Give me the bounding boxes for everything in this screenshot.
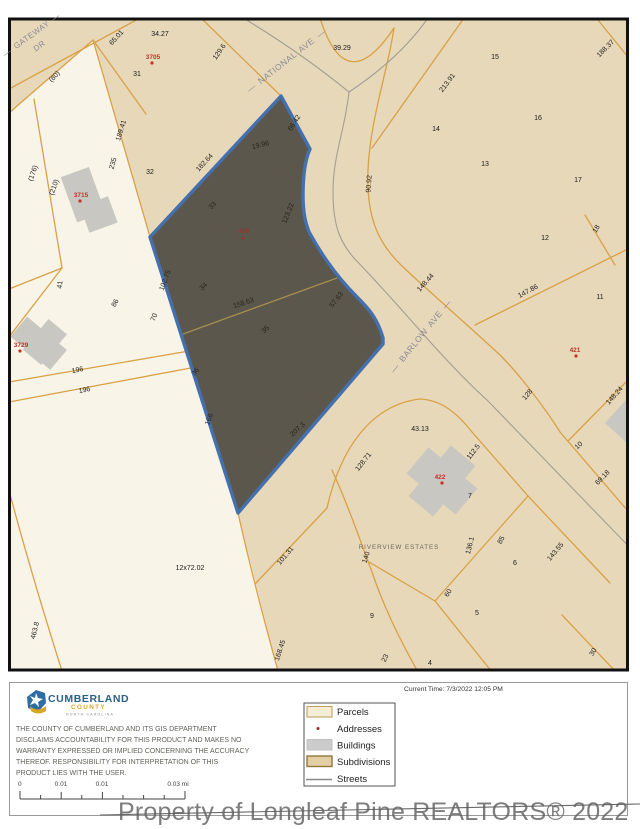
svg-text:0.01: 0.01 xyxy=(55,781,68,788)
svg-text:Current Time: 7/3/2022 12:05 P: Current Time: 7/3/2022 12:05 PM xyxy=(404,686,503,693)
svg-text:RIVERVIEW ESTATES: RIVERVIEW ESTATES xyxy=(359,544,440,551)
svg-text:PRODUCT LIES WITH THE USER.: PRODUCT LIES WITH THE USER. xyxy=(16,770,127,777)
svg-text:11: 11 xyxy=(596,294,603,301)
svg-text:0: 0 xyxy=(18,781,22,788)
svg-text:Property of Longleaf Pine REAL: Property of Longleaf Pine REALTORS® 2022 xyxy=(118,798,629,826)
svg-text:14: 14 xyxy=(432,126,440,133)
svg-text:NORTH CAROLINA: NORTH CAROLINA xyxy=(66,713,114,717)
svg-text:408: 408 xyxy=(239,228,250,235)
svg-text:COUNTY: COUNTY xyxy=(71,704,106,711)
svg-text:Buildings: Buildings xyxy=(337,741,376,752)
svg-text:THE COUNTY OF CUMBERLAND AND I: THE COUNTY OF CUMBERLAND AND ITS GIS DEP… xyxy=(16,726,217,733)
svg-text:32: 32 xyxy=(146,169,154,176)
svg-text:0.01: 0.01 xyxy=(96,781,109,788)
svg-text:12x72.02: 12x72.02 xyxy=(176,565,205,572)
svg-text:422: 422 xyxy=(435,474,446,481)
svg-text:5: 5 xyxy=(475,610,479,617)
svg-text:41: 41 xyxy=(57,281,65,290)
svg-text:31: 31 xyxy=(133,71,141,78)
svg-text:15: 15 xyxy=(491,54,499,61)
svg-text:3705: 3705 xyxy=(146,54,161,61)
svg-text:3715: 3715 xyxy=(74,192,89,199)
svg-text:43.13: 43.13 xyxy=(411,426,429,433)
svg-text:90.92: 90.92 xyxy=(365,175,373,193)
svg-text:0.03 mi: 0.03 mi xyxy=(167,781,188,788)
svg-text:DISCLAIMS ACCOUNTABILITY FOR T: DISCLAIMS ACCOUNTABILITY FOR THIS PRODUC… xyxy=(16,737,242,744)
svg-text:Addresses: Addresses xyxy=(337,724,382,735)
svg-text:THEREOF. RESPONSIBILITY FOR I: THEREOF. RESPONSIBILITY FOR INTERPRETATI… xyxy=(16,759,218,766)
svg-text:34.27: 34.27 xyxy=(151,31,169,38)
svg-text:17: 17 xyxy=(574,177,582,184)
svg-text:6: 6 xyxy=(513,560,517,567)
svg-text:12: 12 xyxy=(541,235,549,242)
svg-text:Streets: Streets xyxy=(337,774,367,785)
svg-text:WARRANTY EXPRESSED OR IMPLIED: WARRANTY EXPRESSED OR IMPLIED CONCERNING… xyxy=(16,748,250,755)
svg-text:7: 7 xyxy=(468,493,472,500)
svg-text:16: 16 xyxy=(534,115,542,122)
svg-text:421: 421 xyxy=(570,347,581,354)
svg-text:Parcels: Parcels xyxy=(337,707,369,718)
svg-text:4: 4 xyxy=(428,660,432,667)
svg-text:3729: 3729 xyxy=(14,342,29,349)
svg-text:Subdivisions: Subdivisions xyxy=(337,757,391,768)
svg-text:13: 13 xyxy=(481,161,489,168)
svg-text:39.29: 39.29 xyxy=(333,45,351,52)
svg-text:9: 9 xyxy=(370,613,374,620)
